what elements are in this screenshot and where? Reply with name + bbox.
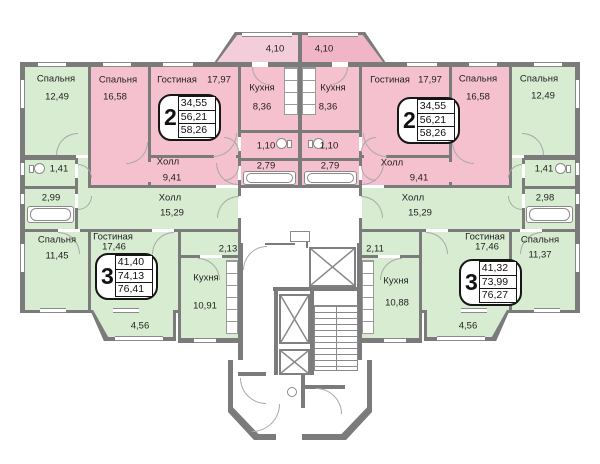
area-total: 76,41 bbox=[115, 282, 153, 297]
door-gap bbox=[148, 162, 151, 182]
toilet-icon-tank bbox=[566, 165, 571, 173]
window bbox=[407, 62, 437, 67]
window bbox=[163, 62, 193, 67]
elevator-shaft-icon bbox=[309, 247, 356, 287]
room-name: Холл bbox=[381, 158, 403, 169]
bathtub-icon-inner bbox=[246, 173, 293, 183]
toilet-icon bbox=[276, 138, 287, 149]
window bbox=[534, 62, 562, 67]
room-area: 9,41 bbox=[163, 173, 182, 184]
wall-vestibule-h-right bbox=[305, 385, 345, 389]
toilet-icon-tank bbox=[308, 140, 313, 148]
room-name: Спальня bbox=[520, 74, 558, 85]
door-gap bbox=[522, 164, 525, 178]
stove-counter-icon bbox=[302, 67, 316, 115]
rooms-count: 3 bbox=[463, 271, 479, 294]
door-gap-apartment-entry bbox=[362, 185, 384, 188]
room-area: 2,98 bbox=[536, 193, 555, 204]
room-area: 15,29 bbox=[408, 208, 432, 219]
area-living: 41,40 bbox=[115, 255, 153, 270]
room-area: 2,13 bbox=[219, 244, 238, 255]
window bbox=[38, 62, 66, 67]
area-usable: 74,13 bbox=[115, 269, 153, 284]
window bbox=[384, 338, 406, 343]
room-area: 9,41 bbox=[410, 173, 429, 184]
area-living: 41,32 bbox=[479, 261, 517, 276]
apartment-badge-3room-right: 3 41,32 73,99 76,27 bbox=[459, 259, 522, 306]
bathtub-icon-inner bbox=[529, 208, 570, 221]
room-bedroom-pink-right bbox=[452, 67, 509, 185]
area-living: 34,55 bbox=[178, 96, 216, 111]
room-area: 17,97 bbox=[207, 75, 231, 86]
room-area: 17,46 bbox=[475, 242, 499, 253]
window bbox=[575, 80, 580, 108]
room-area: 4,56 bbox=[459, 321, 478, 332]
area-usable: 56,21 bbox=[178, 110, 216, 125]
room-area: 16,58 bbox=[466, 92, 490, 103]
area-usable: 73,99 bbox=[479, 275, 517, 290]
window bbox=[20, 163, 25, 175]
room-area: 4,56 bbox=[131, 321, 150, 332]
window bbox=[20, 194, 25, 204]
room-name: Гостиная bbox=[157, 75, 197, 86]
bathtub-icon-inner bbox=[30, 208, 71, 221]
room-name: Спальня bbox=[521, 235, 559, 246]
toilet-icon-tank bbox=[29, 165, 34, 173]
rooms-count: 2 bbox=[162, 106, 178, 129]
room-area: 17,97 bbox=[418, 75, 442, 86]
room-area: 8,36 bbox=[319, 102, 338, 113]
room-area: 11,45 bbox=[45, 251, 68, 262]
room-area: 8,36 bbox=[253, 102, 272, 113]
door-gap bbox=[449, 162, 452, 182]
room-area: 11,37 bbox=[528, 250, 551, 261]
window bbox=[575, 244, 580, 272]
wall-lobby-stub-left bbox=[265, 243, 295, 245]
apartment-badge-3room-left: 3 41,40 74,13 76,41 bbox=[95, 253, 158, 300]
staircase-icon bbox=[314, 305, 358, 371]
floor-plan: Спальня 12,49 Спальня 16,58 Гостиная 17,… bbox=[0, 0, 600, 464]
bathtub-icon-inner bbox=[307, 173, 354, 183]
room-area: 17,46 bbox=[102, 242, 126, 253]
room-name: Кухня bbox=[320, 83, 345, 94]
room-area: 4,10 bbox=[315, 44, 334, 55]
column-icon bbox=[287, 387, 297, 397]
door-gap bbox=[522, 194, 525, 208]
door-gap-apartment-entry bbox=[216, 185, 238, 188]
window bbox=[20, 244, 25, 272]
wall-shaft-left bbox=[274, 287, 278, 375]
area-usable: 56,21 bbox=[417, 113, 455, 128]
area-total: 58,26 bbox=[178, 123, 216, 138]
room-area: 1,41 bbox=[50, 164, 69, 175]
rooms-count: 3 bbox=[99, 265, 115, 288]
room-area: 10,88 bbox=[385, 298, 409, 309]
room-area: 2,99 bbox=[42, 193, 61, 204]
room-area: 4,10 bbox=[266, 44, 285, 55]
room-name: Спальня bbox=[37, 74, 75, 85]
room-name: Холл bbox=[157, 157, 179, 168]
door-gap bbox=[512, 155, 524, 158]
door-gap bbox=[76, 155, 88, 158]
room-area: 12,49 bbox=[531, 91, 555, 102]
wall-core-h bbox=[273, 287, 362, 291]
room-hall-green-right bbox=[362, 188, 522, 229]
room-name: Кухня bbox=[383, 276, 408, 287]
apartment-badge-2room-right: 2 34,55 56,21 58,26 bbox=[397, 97, 460, 144]
door-gap-entrance bbox=[276, 432, 302, 440]
window bbox=[194, 338, 216, 343]
room-area: 1,10 bbox=[320, 141, 339, 152]
window bbox=[40, 308, 66, 313]
window-balcony bbox=[242, 32, 292, 37]
window bbox=[469, 62, 497, 67]
window bbox=[113, 308, 139, 313]
wall-vestibule-h-left bbox=[238, 372, 266, 376]
window bbox=[103, 62, 131, 67]
room-name: Холл bbox=[402, 193, 424, 204]
window bbox=[534, 308, 560, 313]
window-balcony bbox=[308, 32, 358, 37]
room-name: Спальня bbox=[38, 235, 76, 246]
room-name: Гостиная bbox=[370, 75, 410, 86]
door-gap bbox=[200, 255, 222, 258]
stove-counter-icon bbox=[362, 260, 374, 334]
apartment-badge-2room-left: 2 34,55 56,21 58,26 bbox=[158, 94, 221, 141]
room-area: 2,79 bbox=[257, 161, 276, 172]
window bbox=[575, 194, 580, 204]
stove-counter-icon bbox=[226, 260, 238, 334]
room-name: Холл bbox=[159, 193, 181, 204]
room-balcony-top-left bbox=[217, 35, 298, 62]
area-living: 34,55 bbox=[417, 99, 455, 114]
chute-icon bbox=[290, 231, 310, 242]
room-name: Кухня bbox=[193, 273, 218, 284]
window-balcony bbox=[115, 336, 163, 341]
room-area: 12,49 bbox=[45, 92, 69, 103]
room-name: Спальня bbox=[459, 74, 497, 85]
window bbox=[461, 308, 487, 313]
stove-counter-icon bbox=[284, 67, 298, 115]
window-balcony bbox=[437, 336, 485, 341]
elevator-shaft-icon bbox=[279, 349, 310, 375]
room-area: 1,41 bbox=[535, 164, 554, 175]
room-area: 2,79 bbox=[321, 161, 340, 172]
room-name: Кухня bbox=[249, 83, 274, 94]
rooms-count: 2 bbox=[401, 109, 417, 132]
elevator-shaft-icon bbox=[279, 294, 310, 344]
room-area: 10,91 bbox=[193, 301, 217, 312]
toilet-icon bbox=[555, 163, 566, 174]
room-area: 15,29 bbox=[160, 208, 184, 219]
toilet-icon bbox=[34, 163, 45, 174]
room-area: 2,11 bbox=[366, 244, 384, 255]
room-name: Спальня bbox=[99, 75, 137, 86]
room-area: 1,10 bbox=[257, 141, 276, 152]
window bbox=[575, 163, 580, 175]
room-area: 16,58 bbox=[103, 92, 127, 103]
area-total: 76,27 bbox=[479, 288, 517, 303]
window bbox=[20, 80, 25, 108]
area-total: 58,26 bbox=[417, 126, 455, 141]
toilet-icon-tank bbox=[287, 140, 292, 148]
